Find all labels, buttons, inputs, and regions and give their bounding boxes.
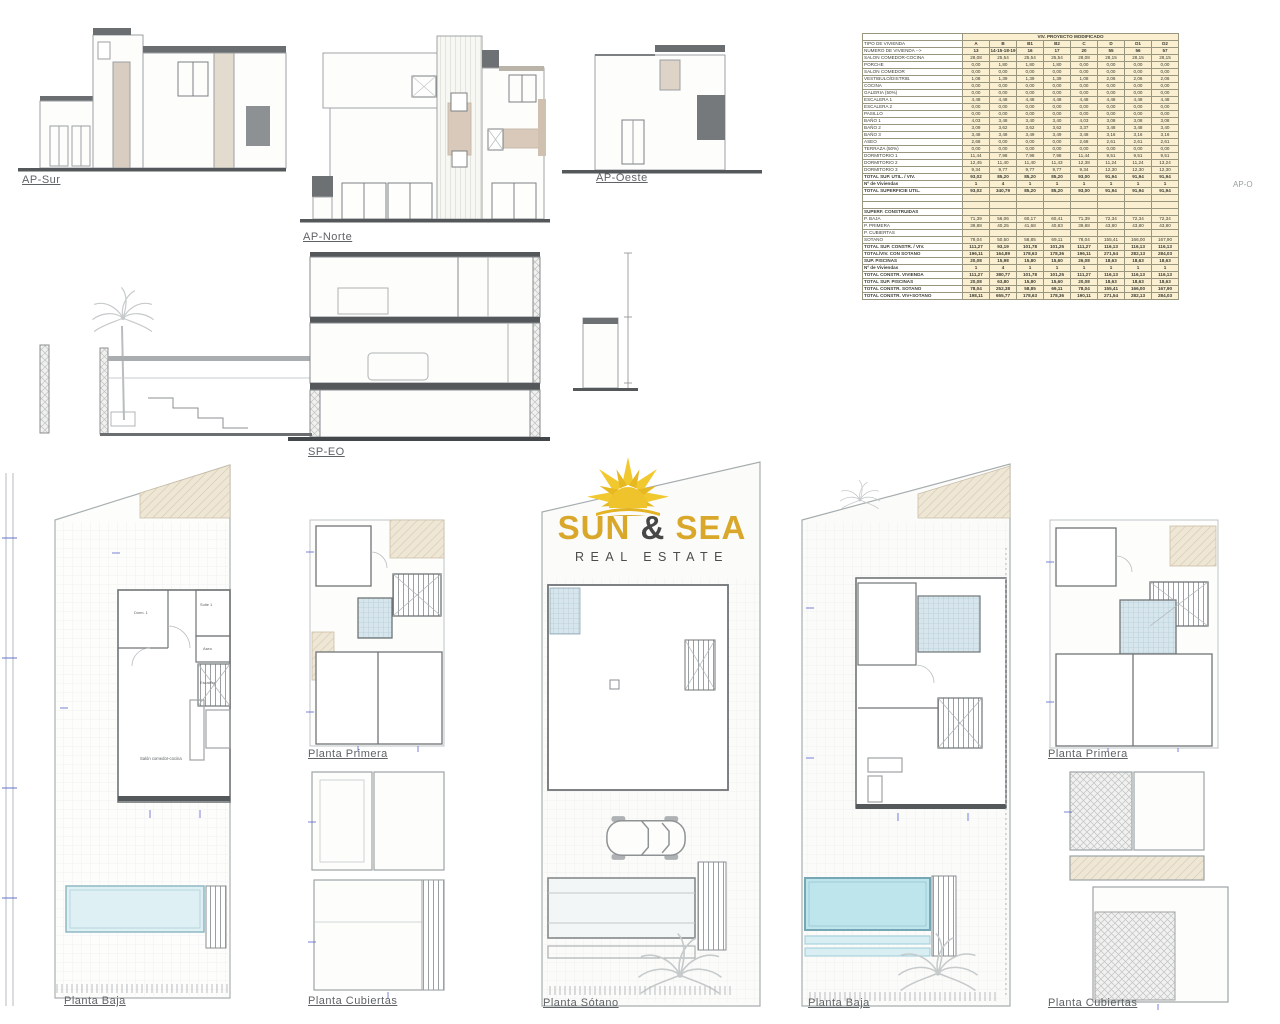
table-cell: TOTAL SUP. UTIL. / VIV. xyxy=(863,174,963,181)
elevation-ap-sur-drawing xyxy=(18,26,288,182)
fence-strip xyxy=(548,986,733,995)
table-cell: 1 xyxy=(1044,181,1071,188)
table-cell: 41,68 xyxy=(1017,223,1044,230)
table-cell: 1,80 xyxy=(1017,62,1044,69)
table-cell: DORMITORIO 2 xyxy=(863,160,963,167)
table-cell: 25,54 xyxy=(1044,55,1071,62)
table-row: DORMITORIO 39,349,779,779,779,3412,3012,… xyxy=(863,167,1179,174)
table-cell: 271,54 xyxy=(1098,251,1125,258)
label-planta-baja-left: Planta Baja xyxy=(64,995,126,1007)
table-cell: 166,00 xyxy=(1125,237,1152,244)
table-cell: 56 xyxy=(1125,48,1152,55)
dimension-strip xyxy=(2,473,17,1006)
table-cell: 3,08 xyxy=(1125,118,1152,125)
table-cell: 1,08 xyxy=(963,76,990,83)
room-label: Escalera xyxy=(200,680,216,685)
table-cell: 91,94 xyxy=(1098,188,1125,195)
table-cell: 101,78 xyxy=(1017,244,1044,251)
table-cell: 0,00 xyxy=(963,62,990,69)
table-cell: 1 xyxy=(1098,181,1125,188)
table-cell: 0,00 xyxy=(1044,104,1071,111)
table-cell: 111,27 xyxy=(963,244,990,251)
table-cell: 93,02 xyxy=(963,188,990,195)
table-row: TIPO DE VIVIENDAABB1B2CDD1D2 xyxy=(863,41,1179,48)
table-cell: 25,54 xyxy=(1017,55,1044,62)
table-row: COCINA0,000,000,000,000,000,000,000,00 xyxy=(863,83,1179,90)
logo-tagline: REAL ESTATE xyxy=(538,551,766,564)
table-cell: TOTAL CONSTR. VIVIENDA xyxy=(863,272,963,279)
table-cell: 3,48 xyxy=(963,132,990,139)
table-cell: 91,94 xyxy=(1125,174,1152,181)
room-label: Dorm. 1 xyxy=(134,610,148,615)
table-cell: 1 xyxy=(1152,181,1179,188)
table-cell: 0,00 xyxy=(1152,83,1179,90)
table-cell: TOTAL SUP. CONSTR. / VIV. xyxy=(863,244,963,251)
table-cell: 2,06 xyxy=(1152,76,1179,83)
plan-baja-left-drawing: Dorm. 1 Suite 1 Aseo Escalera Salón come… xyxy=(0,458,240,1010)
plan-baja-right-drawing xyxy=(798,458,1014,1012)
project-table: VIV. PROYECTO MODIFICADOTIPO DE VIVIENDA… xyxy=(862,33,1179,300)
table-cell: 3,40 xyxy=(1017,118,1044,125)
table-cell xyxy=(1071,209,1098,216)
table-cell: A xyxy=(963,41,990,48)
table-cell: 0,00 xyxy=(1098,62,1125,69)
table-cell: 69,11 xyxy=(1044,286,1071,293)
table-row: NUMERO DE VIVIENDA -->1314-15-18-1916172… xyxy=(863,48,1179,55)
table-cell: 15,98 xyxy=(990,258,1017,265)
label-planta-primera-right: Planta Primera xyxy=(1048,748,1128,760)
table-cell: 190,11 xyxy=(1071,293,1098,300)
table-cell: 9,51 xyxy=(1152,153,1179,160)
table-cell: 4,48 xyxy=(1152,97,1179,104)
table-cell xyxy=(990,202,1017,209)
table-cell: 12,38 xyxy=(1071,160,1098,167)
table-cell: 4,48 xyxy=(1125,97,1152,104)
plan-cubiertas-right-drawing xyxy=(1038,762,1233,1012)
table-cell: VIV. PROYECTO MODIFICADO xyxy=(963,34,1179,41)
table-row: P. PRIMERA39,8840,2541,6840,8339,8843,80… xyxy=(863,223,1179,230)
room-label: Aseo xyxy=(203,646,212,651)
table-row: BAÑO 23,093,623,623,623,373,483,483,40 xyxy=(863,125,1179,132)
table-cell: 78,04 xyxy=(1071,237,1098,244)
table-cell xyxy=(1152,195,1179,202)
table-cell: 2,68 xyxy=(1071,139,1098,146)
table-cell: 116,13 xyxy=(1152,272,1179,279)
table-cell: 1 xyxy=(1044,265,1071,272)
table-cell: 93,02 xyxy=(963,174,990,181)
table-cell: BAÑO 2 xyxy=(863,125,963,132)
table-cell xyxy=(863,195,963,202)
table-cell: 0,00 xyxy=(1044,69,1071,76)
table-cell xyxy=(1125,195,1152,202)
table-cell: 71,39 xyxy=(963,216,990,223)
table-cell xyxy=(1044,209,1071,216)
table-cell xyxy=(1152,230,1179,237)
table-cell: 0,00 xyxy=(1152,90,1179,97)
table-cell: 43,80 xyxy=(1152,223,1179,230)
table-cell: 43,80 xyxy=(1098,223,1125,230)
table-cell: P. PRIMERA xyxy=(863,223,963,230)
car-icon xyxy=(607,816,685,860)
table-cell: 85,20 xyxy=(990,174,1017,181)
table-cell: 167,90 xyxy=(1152,286,1179,293)
table-cell: 85,20 xyxy=(1044,174,1071,181)
table-cell: 4,48 xyxy=(990,97,1017,104)
table-row: TOTAL CONSTR. SOTANO78,04252,3858,8569,1… xyxy=(863,286,1179,293)
table-cell xyxy=(1125,230,1152,237)
table-cell: 111,27 xyxy=(1071,272,1098,279)
table-cell: SUPERF. CONSTRUIDAS xyxy=(863,209,963,216)
pool-steps xyxy=(698,862,726,950)
table-cell: 0,00 xyxy=(1017,90,1044,97)
table-cell: 11,40 xyxy=(1017,160,1044,167)
table-cell: 69,11 xyxy=(1044,237,1071,244)
table-cell: 111,27 xyxy=(963,272,990,279)
table-cell: 78,04 xyxy=(963,286,990,293)
table-row: DORMITORIO 111,447,987,987,9811,449,519,… xyxy=(863,153,1179,160)
table-cell: 178,36 xyxy=(1044,251,1071,258)
table-cell: 0,00 xyxy=(1152,62,1179,69)
table-cell: 11,44 xyxy=(1071,153,1098,160)
table-cell: 2,61 xyxy=(1098,139,1125,146)
table-cell: 72,34 xyxy=(1125,216,1152,223)
table-cell: 0,00 xyxy=(1044,139,1071,146)
table-cell: 12,30 xyxy=(1098,167,1125,174)
table-cell: Nº de Viviendas xyxy=(863,265,963,272)
table-cell: 15,80 xyxy=(1017,279,1044,286)
table-cell: 55 xyxy=(1098,48,1125,55)
table-cell: 0,00 xyxy=(963,104,990,111)
table-cell: 4 xyxy=(990,181,1017,188)
table-cell: 1 xyxy=(1098,265,1125,272)
table-cell: 7,98 xyxy=(1044,153,1071,160)
table-cell: 116,13 xyxy=(1152,244,1179,251)
table-cell: 60,17 xyxy=(1017,216,1044,223)
table-cell: 0,00 xyxy=(1017,104,1044,111)
table-cell: PASILLO xyxy=(863,111,963,118)
table-row: TOTAL CONSTR. VIVIENDA111,27380,77101,78… xyxy=(863,272,1179,279)
table-cell: 18,63 xyxy=(1098,279,1125,286)
table-cell: 28,15 xyxy=(1098,55,1125,62)
table-cell: 0,00 xyxy=(1017,146,1044,153)
table-cell: 78,04 xyxy=(963,237,990,244)
pool xyxy=(66,886,204,932)
table-row: TERRAZA (50%)0,000,000,000,000,000,000,0… xyxy=(863,146,1179,153)
table-cell: 20,08 xyxy=(963,279,990,286)
table-cell: 4,03 xyxy=(1071,118,1098,125)
plan-primera-left-drawing xyxy=(298,512,458,752)
table-cell: 0,00 xyxy=(1098,146,1125,153)
terrace-hatch xyxy=(918,466,1010,518)
table-cell xyxy=(1152,209,1179,216)
table-cell xyxy=(990,230,1017,237)
table-cell: 0,00 xyxy=(990,69,1017,76)
table-cell: 655,77 xyxy=(990,293,1017,300)
table-cell: 3,62 xyxy=(1044,125,1071,132)
table-cell: SALON COMEDOR-COCINA xyxy=(863,55,963,62)
table-cell: 198,11 xyxy=(963,293,990,300)
table-cell: 1 xyxy=(963,265,990,272)
table-cell: 116,13 xyxy=(1098,272,1125,279)
table-cell: 3,62 xyxy=(990,125,1017,132)
table-row: BAÑO 33,483,483,493,493,483,163,163,16 xyxy=(863,132,1179,139)
table-cell: 91,94 xyxy=(1125,188,1152,195)
table-cell: 12,30 xyxy=(1152,167,1179,174)
table-row: SALON COMEDOR-COCINA28,0825,5425,5425,54… xyxy=(863,55,1179,62)
table-row: SALON COMEDOR0,000,000,000,000,000,000,0… xyxy=(863,69,1179,76)
table-cell: ESCALERA 1 xyxy=(863,97,963,104)
table-cell: 20,08 xyxy=(1071,279,1098,286)
label-ap-norte: AP-Norte xyxy=(303,231,352,243)
table-cell: 91,94 xyxy=(1152,188,1179,195)
label-planta-primera-left: Planta Primera xyxy=(308,748,388,760)
table-cell: 39,88 xyxy=(1071,223,1098,230)
table-cell: 3,08 xyxy=(1098,118,1125,125)
room-label: Suite 1 xyxy=(200,602,212,607)
table-cell: 0,00 xyxy=(963,69,990,76)
table-cell xyxy=(990,195,1017,202)
table-cell: 60,41 xyxy=(1044,216,1071,223)
table-cell: 15,80 xyxy=(1017,258,1044,265)
table-cell xyxy=(1044,195,1071,202)
table-cell: 3,49 xyxy=(1017,132,1044,139)
terrace-hatch xyxy=(140,465,230,518)
table-cell: BAÑO 3 xyxy=(863,132,963,139)
table-cell xyxy=(1017,230,1044,237)
label-planta-cubiertas-left: Planta Cubiertas xyxy=(308,995,397,1007)
dimension-line xyxy=(624,253,632,388)
table-cell: 2,06 xyxy=(1125,76,1152,83)
table-cell: 0,00 xyxy=(1098,90,1125,97)
table-row: TOTAL SUP. PISCINAS20,0863,8015,8015,602… xyxy=(863,279,1179,286)
table-cell xyxy=(963,202,990,209)
table-cell xyxy=(1098,195,1125,202)
table-cell: 1,08 xyxy=(1071,76,1098,83)
elevation-ap-norte-drawing xyxy=(300,33,550,229)
fence-strip xyxy=(56,984,231,993)
table-cell: D2 xyxy=(1152,41,1179,48)
table-cell: 1 xyxy=(963,181,990,188)
table-cell: 282,13 xyxy=(1125,293,1152,300)
label-ap-sur: AP-Sur xyxy=(22,174,60,186)
table-cell: 11,40 xyxy=(990,160,1017,167)
table-cell: 3,40 xyxy=(1044,118,1071,125)
table-cell: 0,00 xyxy=(1044,146,1071,153)
table-cell: 93,19 xyxy=(990,244,1017,251)
table-cell: 116,13 xyxy=(1125,244,1152,251)
table-cell: 0,00 xyxy=(1098,104,1125,111)
table-cell: 13 xyxy=(963,48,990,55)
table-cell: 4,48 xyxy=(1017,97,1044,104)
table-cell: 1 xyxy=(1125,265,1152,272)
table-cell: 4,48 xyxy=(1098,97,1125,104)
table-row: P. BAJA71,3956,0660,1760,4171,3972,3472,… xyxy=(863,216,1179,223)
table-row: TOTAL CONSTR. VIV+SOTANO198,11655,77178,… xyxy=(863,293,1179,300)
table-cell: 63,80 xyxy=(990,279,1017,286)
table-row: Nº de Viviendas14111111 xyxy=(863,265,1179,272)
elevation-ap-oeste-drawing xyxy=(562,40,762,180)
table-row: VIV. PROYECTO MODIFICADO xyxy=(863,34,1179,41)
label-ap-o-partial: AP-O xyxy=(1233,180,1253,189)
table-row: ESCALERA 14,484,484,484,484,484,484,484,… xyxy=(863,97,1179,104)
table-row xyxy=(863,202,1179,209)
label-sp-eo: SP-EO xyxy=(308,446,345,458)
logo-wordmark: SUN & SEA xyxy=(538,511,766,544)
table-cell: 0,00 xyxy=(1098,69,1125,76)
table-cell xyxy=(1098,209,1125,216)
table-cell: 252,38 xyxy=(990,286,1017,293)
table-cell: 0,00 xyxy=(1125,111,1152,118)
table-cell xyxy=(863,202,963,209)
table-cell xyxy=(1098,230,1125,237)
table-row: TOTAL SUP. UTIL. / VIV.93,0285,2085,2085… xyxy=(863,174,1179,181)
table-row: SUPERF. CONSTRUIDAS xyxy=(863,209,1179,216)
table-cell: 28,15 xyxy=(1125,55,1152,62)
table-cell: 116,13 xyxy=(1098,244,1125,251)
table-cell: 9,77 xyxy=(1017,167,1044,174)
table-cell: 2,61 xyxy=(1152,139,1179,146)
table-cell: 0,00 xyxy=(1071,146,1098,153)
table-cell: 0,00 xyxy=(1017,69,1044,76)
table-cell: 155,41 xyxy=(1098,286,1125,293)
section-sp-eo-drawing xyxy=(38,248,638,460)
table-cell xyxy=(1044,230,1071,237)
table-cell xyxy=(1152,202,1179,209)
table-cell: 1 xyxy=(1125,181,1152,188)
table-cell: 178,63 xyxy=(1017,293,1044,300)
table-cell: 0,00 xyxy=(963,90,990,97)
table-cell: 0,00 xyxy=(1125,62,1152,69)
table-cell: 0,00 xyxy=(963,146,990,153)
table-cell: 178,36 xyxy=(1044,293,1071,300)
table-cell xyxy=(863,34,963,41)
ground-line xyxy=(562,170,762,174)
table-cell xyxy=(990,209,1017,216)
table-cell: BAÑO 1 xyxy=(863,118,963,125)
table-cell: 0,00 xyxy=(1098,111,1125,118)
sun-icon xyxy=(548,456,748,516)
table-cell: 4,48 xyxy=(963,97,990,104)
table-cell: D xyxy=(1098,41,1125,48)
plan-cubiertas-left-drawing xyxy=(298,762,458,1002)
label-planta-sotano: Planta Sótano xyxy=(543,997,619,1009)
logo-word-sea: SEA xyxy=(676,509,747,546)
table-cell: COCINA xyxy=(863,83,963,90)
table-cell: 0,00 xyxy=(990,104,1017,111)
table-cell: TOTAL SUPERFICIE UTIL. xyxy=(863,188,963,195)
table-cell: PORCHE xyxy=(863,62,963,69)
table-cell: 1,39 xyxy=(990,76,1017,83)
table-cell: 11,24 xyxy=(1098,160,1125,167)
table-cell: GALERIA (50%) xyxy=(863,90,963,97)
table-cell: 11,44 xyxy=(963,153,990,160)
table-cell: 0,00 xyxy=(1125,104,1152,111)
table-cell: DORMITORIO 1 xyxy=(863,153,963,160)
table-cell: 0,00 xyxy=(1098,83,1125,90)
table-cell: NUMERO DE VIVIENDA --> xyxy=(863,48,963,55)
table-cell: 3,48 xyxy=(1125,125,1152,132)
table-cell xyxy=(1125,209,1152,216)
table-row: PORCHE0,001,801,801,800,000,000,000,00 xyxy=(863,62,1179,69)
table-cell: 4,48 xyxy=(1071,97,1098,104)
table-cell: 3,37 xyxy=(1071,125,1098,132)
table-cell: SUP. PISCINAS xyxy=(863,258,963,265)
table-cell: 20,08 xyxy=(963,258,990,265)
table-cell xyxy=(1071,195,1098,202)
table-cell: 11,24 xyxy=(1125,160,1152,167)
table-cell: 2,68 xyxy=(963,139,990,146)
label-ap-oeste: AP-Oeste xyxy=(596,172,648,184)
table-cell: 26,08 xyxy=(1071,258,1098,265)
table-cell: 101,78 xyxy=(1017,272,1044,279)
table-cell: 0,00 xyxy=(1071,104,1098,111)
table-cell: 0,00 xyxy=(990,139,1017,146)
table-cell: 1,39 xyxy=(1017,76,1044,83)
table-cell: 3,48 xyxy=(1098,125,1125,132)
table-cell: SALON COMEDOR xyxy=(863,69,963,76)
table-cell xyxy=(1017,202,1044,209)
table-cell: 57 xyxy=(1152,48,1179,55)
table-cell: 0,00 xyxy=(1071,62,1098,69)
table-row: TOTAL/VIV. CON SOTANO196,11164,89178,631… xyxy=(863,251,1179,258)
table-cell: 1 xyxy=(1017,265,1044,272)
table-cell: 3,48 xyxy=(990,118,1017,125)
table-cell: 0,00 xyxy=(1125,90,1152,97)
table-cell: P. CUBIERTAS xyxy=(863,230,963,237)
table-row: SUP. PISCINAS20,0815,9815,8015,6026,0818… xyxy=(863,258,1179,265)
table-cell: 0,00 xyxy=(1125,83,1152,90)
table-cell: 101,25 xyxy=(1044,272,1071,279)
table-cell: 7,98 xyxy=(1017,153,1044,160)
table-cell: 2,61 xyxy=(1125,139,1152,146)
table-cell: 1 xyxy=(1071,265,1098,272)
table-cell: TIPO DE VIVIENDA xyxy=(863,41,963,48)
ground-line xyxy=(18,168,286,172)
table-cell: 2,06 xyxy=(1098,76,1125,83)
table-cell: D1 xyxy=(1125,41,1152,48)
table-cell: 18,63 xyxy=(1098,258,1125,265)
table-cell: 0,00 xyxy=(1152,146,1179,153)
table-cell: 0,00 xyxy=(1071,69,1098,76)
table-cell: 0,00 xyxy=(1152,69,1179,76)
table-cell xyxy=(1044,202,1071,209)
table-cell: TERRAZA (50%) xyxy=(863,146,963,153)
table-cell: 12,45 xyxy=(963,160,990,167)
table-cell: 3,62 xyxy=(1017,125,1044,132)
table-cell: 16 xyxy=(1017,48,1044,55)
table-cell: 56,06 xyxy=(990,216,1017,223)
table-cell xyxy=(1125,202,1152,209)
pool xyxy=(805,878,930,956)
table-row: BAÑO 14,033,483,403,404,033,083,083,08 xyxy=(863,118,1179,125)
table-cell: 58,85 xyxy=(1017,286,1044,293)
table-row: P. CUBIERTAS xyxy=(863,230,1179,237)
table-cell: 72,34 xyxy=(1098,216,1125,223)
table-cell: 3,16 xyxy=(1152,132,1179,139)
table-cell: 0,00 xyxy=(963,111,990,118)
table-cell: 271,54 xyxy=(1098,293,1125,300)
table-cell: 0,00 xyxy=(1017,139,1044,146)
table-cell: ASEO xyxy=(863,139,963,146)
table-cell: 85,20 xyxy=(1044,188,1071,195)
table-cell: TOTAL CONSTR. VIV+SOTANO xyxy=(863,293,963,300)
pool-steps xyxy=(206,886,226,948)
table-cell: 4 xyxy=(990,265,1017,272)
table-row: DORMITORIO 212,4511,4011,4011,4312,3811,… xyxy=(863,160,1179,167)
table-cell: 40,83 xyxy=(1044,223,1071,230)
label-planta-baja-right: Planta Baja xyxy=(808,997,870,1009)
table-cell xyxy=(1071,202,1098,209)
